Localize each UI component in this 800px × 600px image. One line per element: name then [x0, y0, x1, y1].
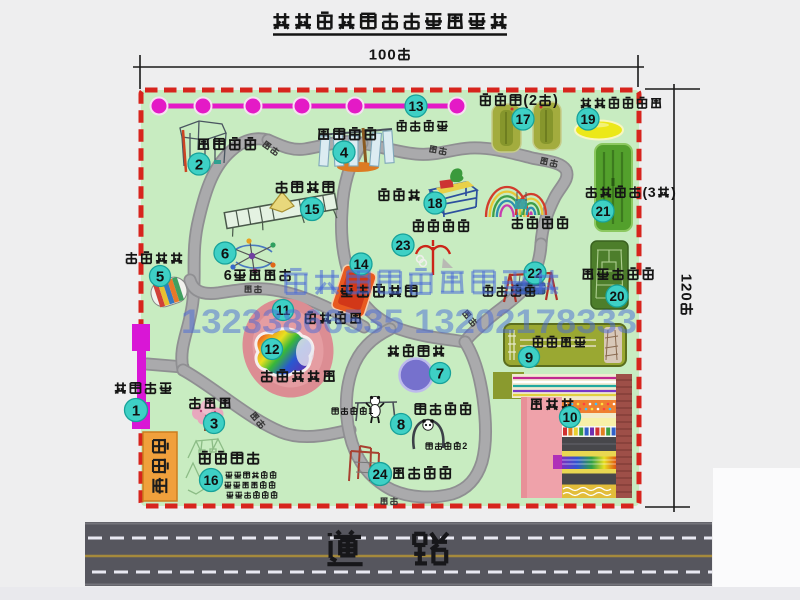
- svg-text:15: 15: [304, 202, 320, 217]
- svg-text:14: 14: [353, 257, 369, 272]
- svg-text:23: 23: [395, 238, 411, 253]
- svg-text:13: 13: [408, 99, 424, 114]
- svg-text:2: 2: [195, 156, 203, 173]
- svg-text:7: 7: [436, 365, 444, 382]
- svg-text:1: 1: [132, 402, 140, 419]
- svg-text:24: 24: [372, 467, 388, 482]
- svg-text:17: 17: [515, 112, 530, 127]
- svg-text:(: (: [642, 184, 647, 200]
- svg-text:2: 2: [678, 283, 695, 291]
- svg-text:12: 12: [264, 342, 279, 357]
- svg-text:16: 16: [203, 473, 219, 488]
- svg-text:9: 9: [525, 349, 533, 366]
- svg-text:2: 2: [529, 93, 537, 109]
- svg-text:0: 0: [378, 46, 386, 63]
- svg-text:20: 20: [609, 289, 624, 304]
- svg-text:1: 1: [678, 274, 695, 282]
- svg-text:6: 6: [221, 245, 229, 262]
- svg-text:): ): [553, 93, 558, 109]
- svg-text:0: 0: [387, 46, 395, 63]
- svg-text:(: (: [523, 93, 528, 109]
- svg-text:1: 1: [368, 406, 373, 416]
- svg-text:3: 3: [648, 184, 656, 200]
- svg-text:4: 4: [340, 144, 349, 161]
- svg-text:6: 6: [224, 268, 232, 284]
- svg-text:2: 2: [462, 441, 467, 451]
- svg-text:19: 19: [580, 112, 595, 127]
- svg-text:5: 5: [156, 268, 164, 285]
- svg-text:1: 1: [369, 46, 377, 63]
- svg-text:0: 0: [678, 292, 695, 300]
- svg-text:3: 3: [210, 415, 218, 432]
- svg-text:): ): [671, 184, 676, 200]
- svg-text:10: 10: [562, 410, 577, 425]
- svg-text:18: 18: [427, 196, 443, 211]
- svg-text:13233866535 13202178333: 13233866535 13202178333: [181, 303, 637, 341]
- svg-text:21: 21: [595, 204, 611, 219]
- svg-text:8: 8: [397, 416, 405, 433]
